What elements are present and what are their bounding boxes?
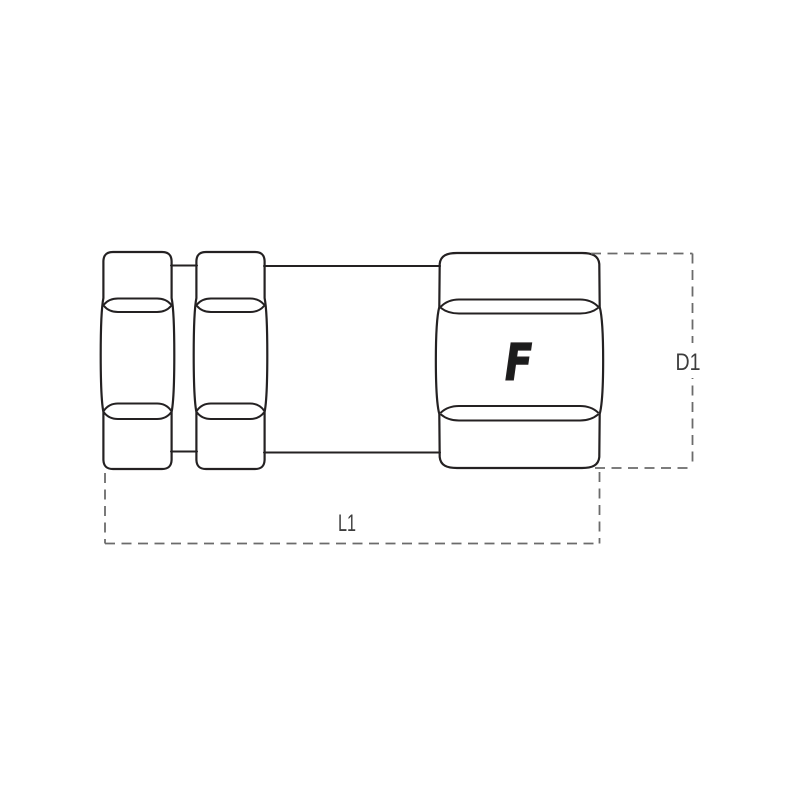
technical-drawing-canvas: F L1 D1 (0, 0, 800, 800)
l1-label: L1 (338, 510, 356, 537)
valve-part-drawing: F (101, 252, 603, 469)
brand-logo-letter: F (500, 333, 536, 393)
hex-nut-middle (194, 252, 268, 469)
valve-body: F (436, 253, 603, 468)
body-facet-line (441, 415, 598, 421)
d1-label: D1 (676, 349, 701, 376)
body-facet-line (441, 406, 598, 413)
body-facet-line (441, 300, 598, 307)
drawing-page: F L1 D1 (0, 0, 800, 800)
hex-nut-left (101, 252, 175, 469)
dimension-lines (105, 254, 693, 544)
body-facet-line (441, 308, 598, 314)
brand-logo-f-icon: F (500, 333, 536, 393)
